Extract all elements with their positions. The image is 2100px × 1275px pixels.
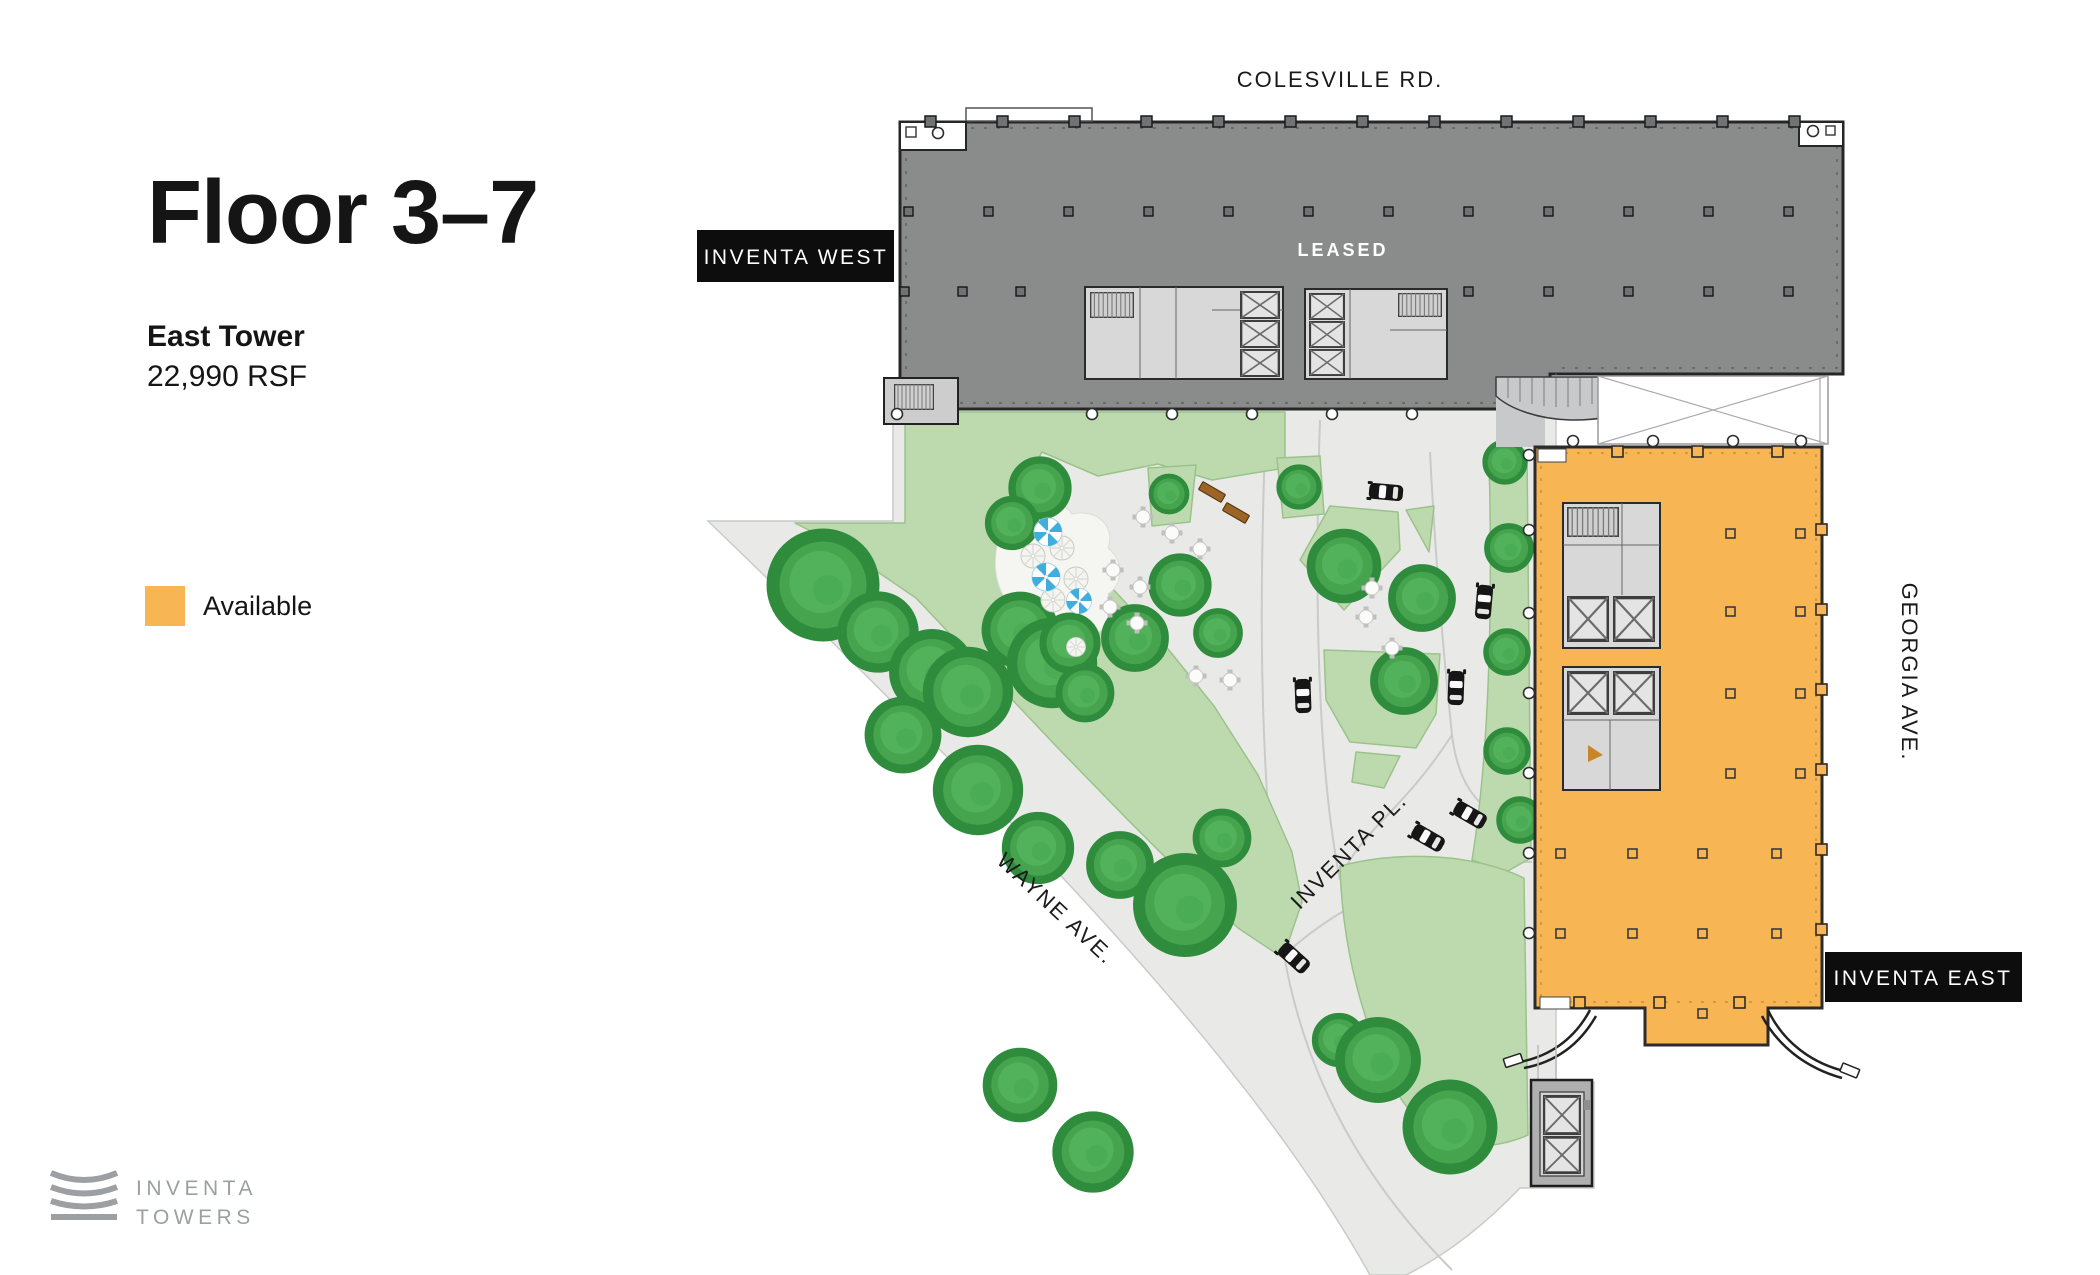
logo-line2: TOWERS (136, 1203, 257, 1232)
building-east[interactable] (1503, 436, 1860, 1187)
core-east-lower (1563, 667, 1660, 790)
building-west-status: LEASED (1297, 240, 1388, 260)
logo-line1: INVENTA (136, 1174, 257, 1203)
legend-available-label: Available (203, 591, 312, 622)
legend-available-swatch (145, 586, 185, 626)
entry-vestibule-west (884, 378, 958, 424)
core-east-upper (1563, 503, 1660, 648)
road-label-colesville: COLESVILLE RD. (1237, 67, 1444, 92)
logo-waves-icon (48, 1166, 120, 1228)
logo: INVENTA TOWERS (48, 1166, 257, 1232)
tower-name: East Tower (147, 320, 305, 354)
legend: Available (145, 586, 312, 626)
tower-area: 22,990 RSF (147, 360, 307, 394)
building-west-tag-label: INVENTA WEST (704, 246, 889, 269)
building-east-tag-label: INVENTA EAST (1834, 967, 2013, 990)
road-label-georgia: GEORGIA AVE. (1897, 583, 1922, 762)
page-title: Floor 3–7 (147, 162, 538, 265)
core-west-left (1085, 287, 1283, 379)
core-west-right (1305, 289, 1447, 379)
page: LEASED (0, 0, 2100, 1275)
building-west-tag: INVENTA WEST (697, 230, 894, 282)
building-east-tag: INVENTA EAST (1825, 952, 2022, 1002)
logo-wordmark: INVENTA TOWERS (136, 1174, 257, 1232)
